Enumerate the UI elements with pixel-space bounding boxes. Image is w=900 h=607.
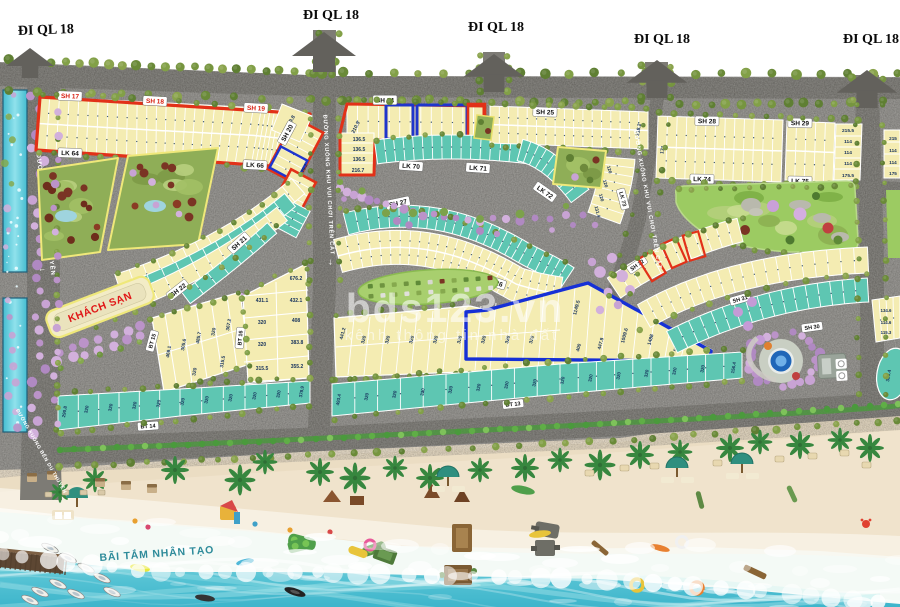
svg-text:kênh thông tin nhà đất: kênh thông tin nhà đất [345,327,559,344]
svg-text:676.2: 676.2 [290,276,303,282]
svg-text:SH 25: SH 25 [536,109,555,117]
svg-text:ĐI QL 18: ĐI QL 18 [634,32,690,47]
svg-text:136.5: 136.5 [353,147,366,153]
svg-text:175: 175 [889,171,897,176]
svg-text:315.5: 315.5 [256,366,269,372]
svg-text:114: 114 [889,148,897,153]
svg-text:LK 71: LK 71 [469,165,488,173]
svg-text:SH 17: SH 17 [61,93,80,101]
svg-text:ĐI QL 18: ĐI QL 18 [18,22,75,39]
svg-text:115.3: 115.3 [881,330,892,335]
svg-text:ĐI QL 18: ĐI QL 18 [843,32,899,47]
svg-text:136.5: 136.5 [353,157,366,163]
svg-text:bds123.vn: bds123.vn [346,285,565,331]
svg-text:432.1: 432.1 [290,298,303,304]
svg-text:LK 64: LK 64 [61,150,79,158]
svg-text:114: 114 [844,139,852,145]
svg-text:215: 215 [889,136,897,141]
svg-text:SH 28: SH 28 [698,118,717,125]
svg-text:216.7: 216.7 [352,168,365,174]
svg-text:355.2: 355.2 [291,364,304,370]
svg-text:→: → [327,258,337,267]
svg-text:134.6: 134.6 [881,308,893,313]
svg-text:175.5: 175.5 [842,173,854,179]
svg-text:320: 320 [258,342,267,348]
svg-text:383.8: 383.8 [291,340,304,346]
svg-text:SH 18: SH 18 [146,98,165,106]
svg-text:114: 114 [844,161,852,167]
svg-text:215.5: 215.5 [842,128,854,134]
svg-text:SH 29: SH 29 [791,120,810,127]
svg-text:431.1: 431.1 [256,298,269,304]
svg-text:LK 70: LK 70 [402,163,421,171]
svg-text:114: 114 [889,160,897,165]
svg-text:320: 320 [258,320,267,326]
svg-text:ĐI QL 18: ĐI QL 18 [468,20,524,35]
svg-text:LK 66: LK 66 [246,162,264,170]
svg-text:408: 408 [292,318,301,324]
svg-text:114: 114 [844,150,852,156]
svg-text:ĐI QL 18: ĐI QL 18 [303,8,359,23]
svg-text:136.5: 136.5 [353,137,366,143]
svg-text:SH 19: SH 19 [247,105,266,113]
